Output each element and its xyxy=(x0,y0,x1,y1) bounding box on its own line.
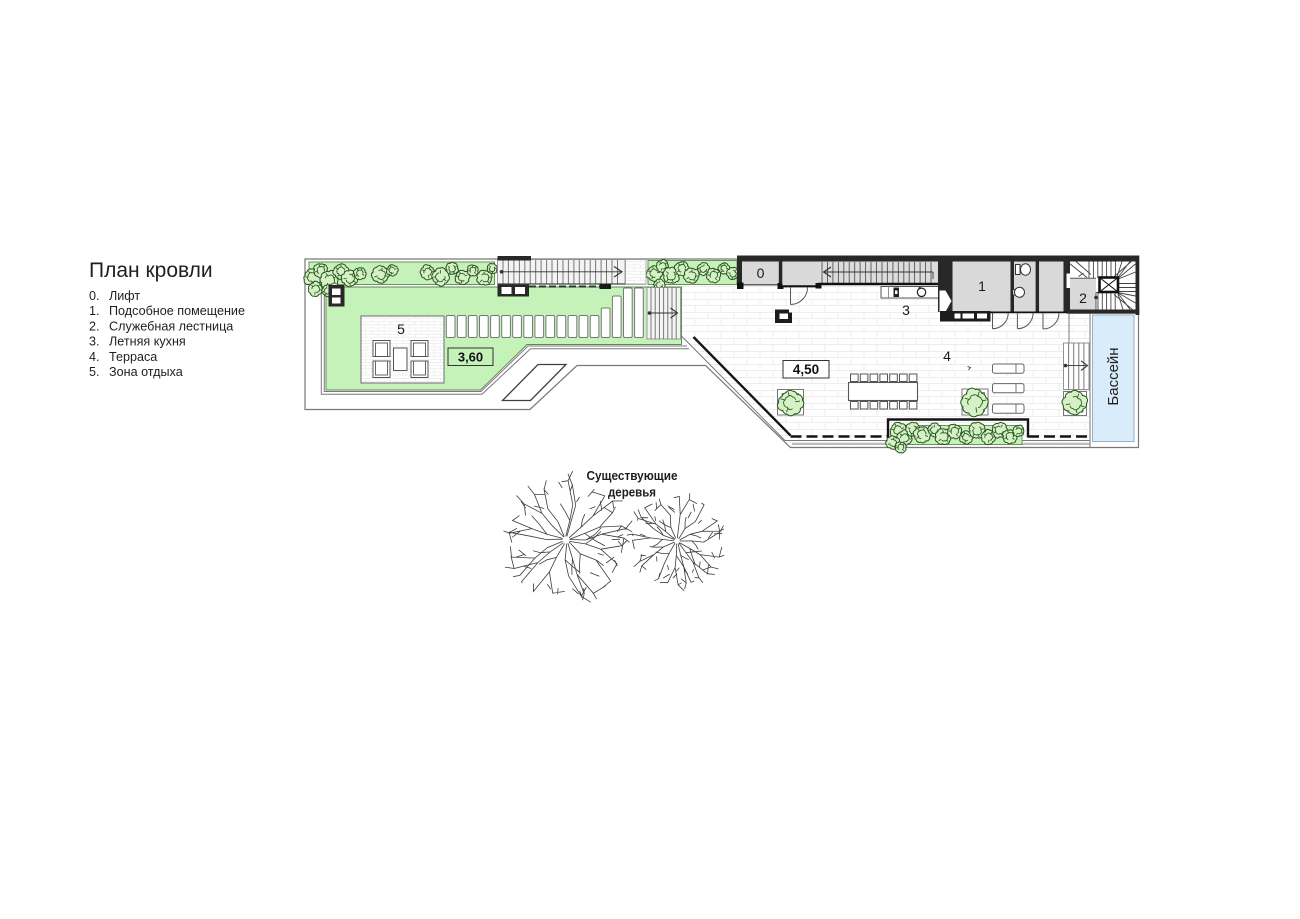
svg-text:5: 5 xyxy=(397,321,405,337)
svg-text:1: 1 xyxy=(978,278,986,294)
svg-text:План кровли: План кровли xyxy=(89,259,213,282)
svg-text:1.: 1. xyxy=(89,304,100,318)
svg-text:5.: 5. xyxy=(89,365,100,379)
svg-text:2.: 2. xyxy=(89,319,100,333)
svg-text:Служебная лестница: Служебная лестница xyxy=(109,319,233,333)
svg-text:Зона отдыха: Зона отдыха xyxy=(109,365,183,379)
svg-text:Подсобное помещение: Подсобное помещение xyxy=(109,304,245,318)
svg-text:2: 2 xyxy=(1079,290,1087,306)
svg-text:4: 4 xyxy=(943,348,951,364)
svg-text:4.: 4. xyxy=(89,350,100,364)
svg-text:Существующие: Существующие xyxy=(587,468,678,483)
svg-text:3,60: 3,60 xyxy=(458,350,483,365)
svg-text:0.: 0. xyxy=(89,289,100,303)
svg-text:Бассейн: Бассейн xyxy=(1105,347,1122,405)
svg-text:3.: 3. xyxy=(89,335,100,349)
svg-text:Терраса: Терраса xyxy=(109,350,157,364)
svg-text:Летняя кухня: Летняя кухня xyxy=(109,335,186,349)
svg-text:4,50: 4,50 xyxy=(793,362,819,377)
svg-text:Лифт: Лифт xyxy=(109,289,140,303)
svg-text:деревья: деревья xyxy=(608,485,656,500)
svg-text:0: 0 xyxy=(757,265,765,281)
svg-text:3: 3 xyxy=(902,302,910,318)
